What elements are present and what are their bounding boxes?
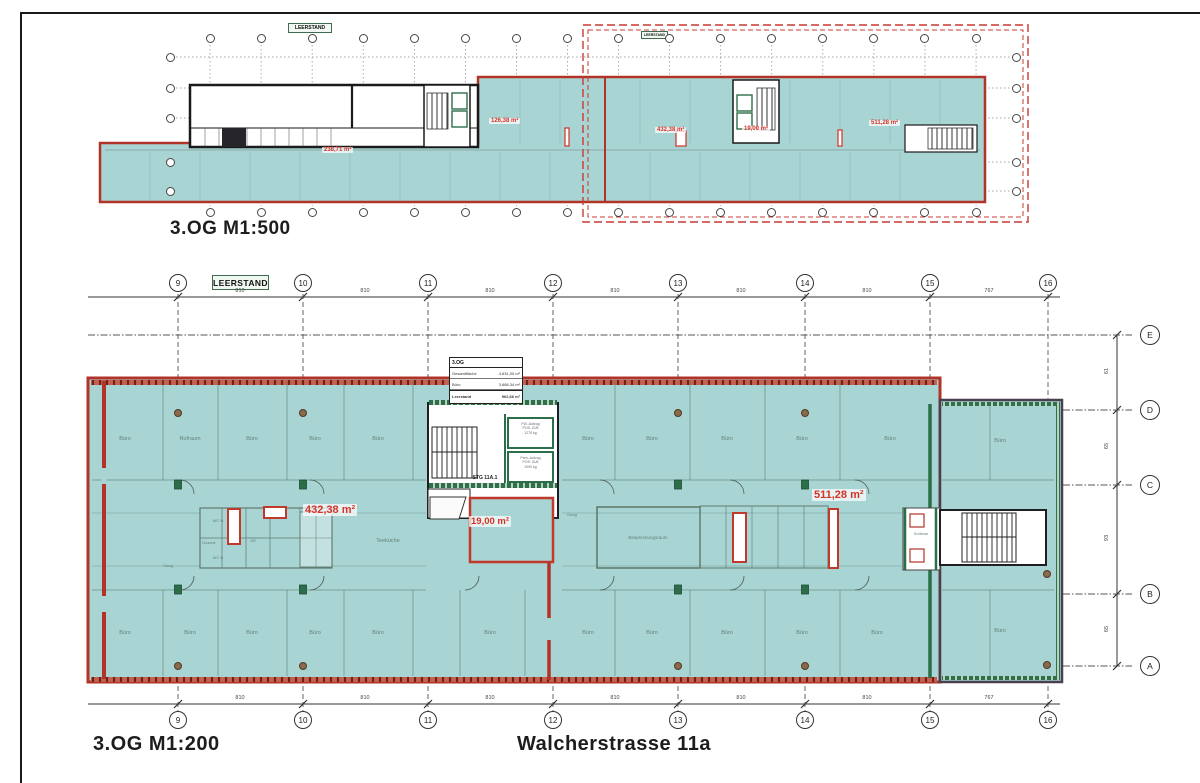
overview-grid-bubble-top <box>257 34 266 43</box>
grid-column-bubble-top: 16 <box>1039 274 1057 292</box>
room-label-schleuse: Schleuse <box>914 533 928 537</box>
dimension-label-bottom: 810 <box>736 695 745 701</box>
overview-grid-bubble-bottom <box>818 208 827 217</box>
grid-column-bubble-top: 9 <box>169 274 187 292</box>
dimension-label-bottom: 767 <box>984 695 993 701</box>
dimension-label-top: 810 <box>485 288 494 294</box>
grid-row-bubble: E <box>1140 325 1160 345</box>
elevator-line: 1000 kg <box>508 465 553 469</box>
address-title: Walcherstrasse 11a <box>517 733 711 756</box>
elevator-pers-label: Pers.-Aufzug POS. ZU6 1000 kg <box>508 452 553 482</box>
dimension-label-right: 61 <box>1104 368 1110 374</box>
room-label-buero: Büro <box>721 630 733 636</box>
grid-column-bubble-bottom: 11 <box>419 711 437 729</box>
overview-grid-bubble-bottom <box>257 208 266 217</box>
elevator-line: 1275 kg <box>508 431 553 435</box>
overview-grid-bubble-bottom <box>767 208 776 217</box>
grid-column-bubble-bottom: 12 <box>544 711 562 729</box>
detail-area-label-432: 432,38 m² <box>303 504 357 516</box>
overview-grid-bubble-top <box>308 34 317 43</box>
dimension-label-top: 810 <box>736 288 745 294</box>
row-value: 3.668,34 m² <box>499 382 520 387</box>
room-label-wch: WC H <box>213 519 224 523</box>
overview-grid-bubble-top <box>972 34 981 43</box>
room-label-buero: Büro <box>484 630 496 636</box>
row-label: Gesamtfläche <box>452 371 477 376</box>
row-value: 4.631,00 m² <box>499 371 520 376</box>
grid-column-bubble-bottom: 15 <box>921 711 939 729</box>
overview-row-bubble-left <box>166 114 175 123</box>
grid-column-bubble-top: 12 <box>544 274 562 292</box>
grid-column-bubble-bottom: 10 <box>294 711 312 729</box>
floorplan-sheet: 3.OG M1:500 LEERSTAND LEERSTAND 238,71 m… <box>0 0 1200 783</box>
grid-column-bubble-bottom: 13 <box>669 711 687 729</box>
overview-grid-bubble-bottom <box>614 208 623 217</box>
area-summary-row-total: Leerstand 962,66 m² <box>450 390 522 401</box>
room-label-ar: AR <box>250 539 256 543</box>
overview-grid-bubble-bottom <box>972 208 981 217</box>
dimension-label-top: 810 <box>610 288 619 294</box>
area-summary-row: Gesamtfläche 4.631,00 m² <box>450 368 522 379</box>
dimension-label-top: 810 <box>360 288 369 294</box>
area-summary-header: 3.OG <box>450 358 522 368</box>
overview-grid-bubble-top <box>614 34 623 43</box>
room-label-buero: Büro <box>721 436 733 442</box>
room-label-buero: Büro <box>119 630 131 636</box>
detail-building <box>88 372 1062 682</box>
dimension-label-right: 65 <box>1104 443 1110 449</box>
overview-grid-bubble-bottom <box>308 208 317 217</box>
room-label-buero: Büro <box>309 630 321 636</box>
dimension-label-top: 810 <box>862 288 871 294</box>
room-label-buero: Büro <box>372 630 384 636</box>
grid-row-bubble: B <box>1140 584 1160 604</box>
overview-grid-bubble-bottom <box>869 208 878 217</box>
room-label-buero: Büro <box>246 436 258 442</box>
area-summary-table: 3.OG Gesamtfläche 4.631,00 m² Büro 3.668… <box>449 357 523 404</box>
row-label: Büro <box>452 382 460 387</box>
room-label-buero: Büro <box>646 436 658 442</box>
overview-building <box>100 77 985 202</box>
room-label-buero: Büro <box>184 630 196 636</box>
overview-grid-bubble-bottom <box>665 208 674 217</box>
grid-column-bubble-bottom: 16 <box>1039 711 1057 729</box>
grid-row-bubble: A <box>1140 656 1160 676</box>
grid-row-bubble: D <box>1140 400 1160 420</box>
row-value: 962,66 m² <box>502 394 520 399</box>
detail-area-label-511: 511,28 m² <box>812 489 866 501</box>
detail-plan-title: 3.OG M1:200 <box>93 733 220 756</box>
overview-row-bubble-left <box>166 53 175 62</box>
overview-leerstand-badge: LEERSTAND <box>288 23 332 33</box>
overview-grid-bubble-top <box>461 34 470 43</box>
overview-row-bubble-left <box>166 158 175 167</box>
grid-column-bubble-top: 11 <box>419 274 437 292</box>
overview-grid-bubble-bottom <box>410 208 419 217</box>
room-label-buero: Büro <box>994 628 1006 634</box>
overview-leerstand-badge-small: LEERSTAND <box>641 31 668 39</box>
room-label-dusche: Dusche <box>202 541 216 545</box>
dimension-label-right: 93 <box>1104 535 1110 541</box>
room-label-buero: Büro <box>994 438 1006 444</box>
overview-grid-bubble-top <box>410 34 419 43</box>
dimension-label-top: 767 <box>984 288 993 294</box>
grid-column-bubble-top: 15 <box>921 274 939 292</box>
room-label-buero: Büro <box>884 436 896 442</box>
overview-area-label: 19,00 m² <box>742 126 770 132</box>
room-label-buero: Büro <box>796 436 808 442</box>
overview-grid-bubble-top <box>512 34 521 43</box>
room-label-buero: Büro <box>646 630 658 636</box>
room-label-gang: Gang <box>163 564 173 568</box>
overview-row-bubble-right <box>1012 53 1021 62</box>
overview-grid-bubble-top <box>665 34 674 43</box>
grid-column-bubble-top: 14 <box>796 274 814 292</box>
overview-plan-title: 3.OG M1:500 <box>170 218 291 240</box>
grid-column-bubble-bottom: 9 <box>169 711 187 729</box>
overview-grid-bubble-top <box>359 34 368 43</box>
overview-row-bubble-left <box>166 187 175 196</box>
overview-grid-bubble-top <box>818 34 827 43</box>
overview-grid-bubble-bottom <box>563 208 572 217</box>
room-label-buero: Büro <box>309 436 321 442</box>
overview-area-label: 238,71 m² <box>322 147 353 153</box>
room-label-buero: Büro <box>119 436 131 442</box>
room-label-gang: Gang <box>567 513 577 517</box>
room-label-teekueche: Teeküche <box>376 538 400 544</box>
room-label-rufraum: Rufraum <box>179 436 200 442</box>
dimension-label-bottom: 810 <box>862 695 871 701</box>
detail-area-label-19: 19,00 m² <box>469 516 511 527</box>
overview-grid-bubble-top <box>767 34 776 43</box>
grid-column-bubble-top: 10 <box>294 274 312 292</box>
overview-grid-bubble-bottom <box>920 208 929 217</box>
overview-grid-bubble-bottom <box>716 208 725 217</box>
overview-grid-bubble-top <box>716 34 725 43</box>
area-summary-row: Büro 3.668,34 m² <box>450 379 522 390</box>
overview-grid-bubble-top <box>206 34 215 43</box>
room-label-buero: Büro <box>796 630 808 636</box>
overview-row-bubble-left <box>166 84 175 93</box>
row-label: Leerstand <box>452 394 471 399</box>
dimension-label-bottom: 810 <box>610 695 619 701</box>
room-label-buero: Büro <box>582 436 594 442</box>
grid-column-bubble-bottom: 14 <box>796 711 814 729</box>
grid-column-bubble-top: 13 <box>669 274 687 292</box>
overview-grid-bubble-bottom <box>512 208 521 217</box>
dimension-label-top: 810 <box>235 288 244 294</box>
overview-grid-bubble-bottom <box>461 208 470 217</box>
overview-area-label: 432,38 m² <box>655 127 686 133</box>
room-label-besprechung: Besprechungsraum <box>628 536 667 541</box>
grid-row-bubble: C <box>1140 475 1160 495</box>
elevator-fw-label: FW.-Aufzug POS. ZU5 1275 kg <box>508 418 553 448</box>
dimension-label-bottom: 810 <box>360 695 369 701</box>
overview-grid-bubble-top <box>920 34 929 43</box>
dimension-label-bottom: 810 <box>235 695 244 701</box>
room-label-buero: Büro <box>246 630 258 636</box>
overview-row-bubble-right <box>1012 187 1021 196</box>
overview-row-bubble-right <box>1012 158 1021 167</box>
overview-area-label: 126,38 m² <box>489 118 520 124</box>
dimension-label-right: 65 <box>1104 626 1110 632</box>
overview-grid-bubble-top <box>563 34 572 43</box>
overview-grid-bubble-top <box>869 34 878 43</box>
overview-grid-bubble-bottom <box>206 208 215 217</box>
room-label-buero: Büro <box>871 630 883 636</box>
room-label-wcd: WC D <box>213 556 224 560</box>
overview-area-label: 511,28 m² <box>869 120 900 126</box>
overview-row-bubble-right <box>1012 114 1021 123</box>
overview-row-bubble-right <box>1012 84 1021 93</box>
overview-grid-bubble-bottom <box>359 208 368 217</box>
dimension-label-bottom: 810 <box>485 695 494 701</box>
room-label-buero: Büro <box>582 630 594 636</box>
room-label-buero: Büro <box>372 436 384 442</box>
